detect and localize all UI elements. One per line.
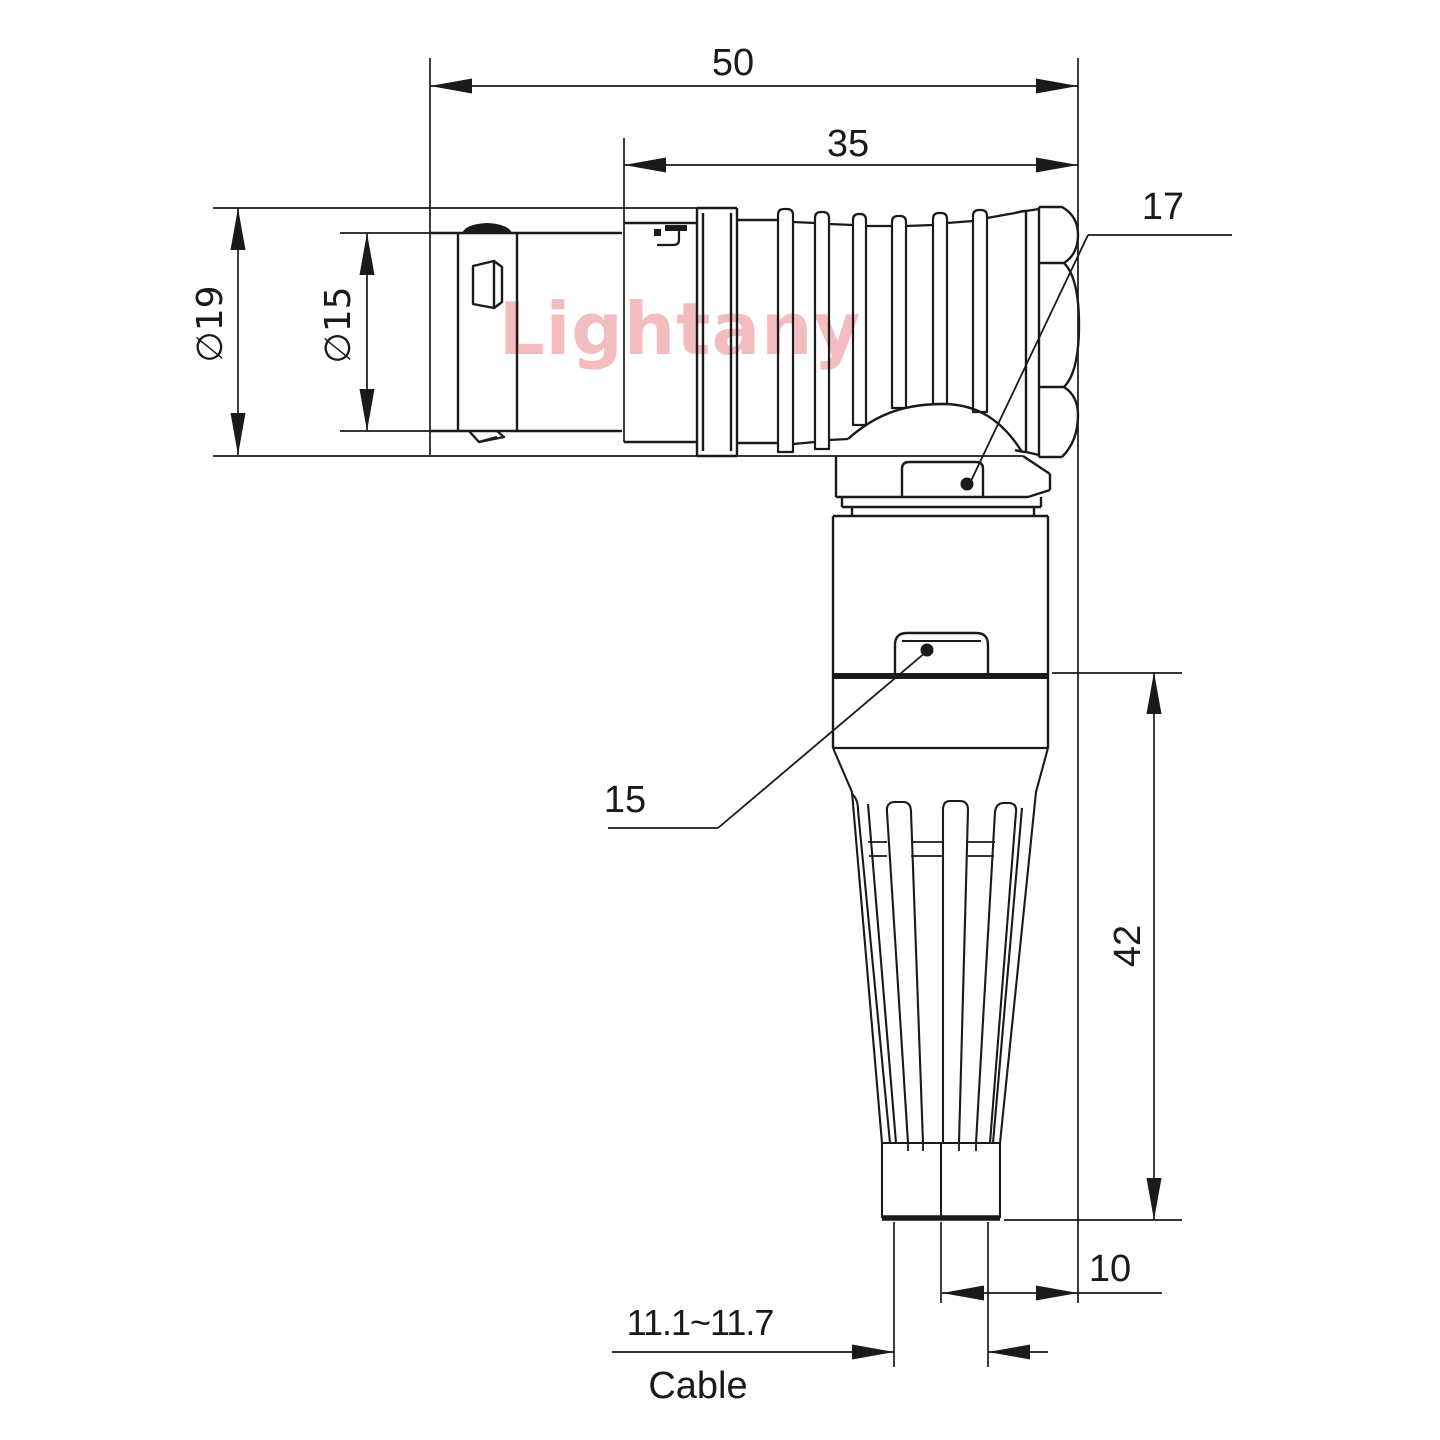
latch-bump <box>462 223 512 233</box>
dim-rear-length-label: 35 <box>827 125 869 163</box>
hex-nut <box>1039 207 1079 457</box>
connector-line-art <box>0 0 1440 1440</box>
cable-label: Cable <box>648 1367 747 1405</box>
technical-drawing-page: Lightany <box>0 0 1440 1440</box>
boot-web-lines <box>868 842 995 856</box>
dim-axis-to-rear-face-label: 10 <box>1089 1250 1131 1288</box>
dim-shell-diameter-label: ∅19 <box>193 285 229 362</box>
collar-rings <box>842 497 1041 516</box>
plug-horizontal-body <box>430 207 1079 457</box>
dim-front-diameter-label: ∅15 <box>321 286 357 363</box>
dim-vertical-length-label: 42 <box>1109 925 1147 967</box>
latch-window <box>473 261 502 308</box>
dim-body-across-flats-label: 15 <box>604 781 646 819</box>
dim-cable-diameter-range-label: 11.1~11.7 <box>627 1305 774 1341</box>
dim-nut-across-flats-label: 17 <box>1142 188 1184 226</box>
dim-overall-length-label: 50 <box>712 44 754 82</box>
body-tab <box>895 633 988 676</box>
leader-lines <box>608 235 1232 828</box>
boot-end-cylinder <box>882 1143 1000 1218</box>
strain-relief-boot <box>833 748 1048 1218</box>
keyway-clip-detail <box>654 228 687 245</box>
washer <box>1015 209 1039 455</box>
